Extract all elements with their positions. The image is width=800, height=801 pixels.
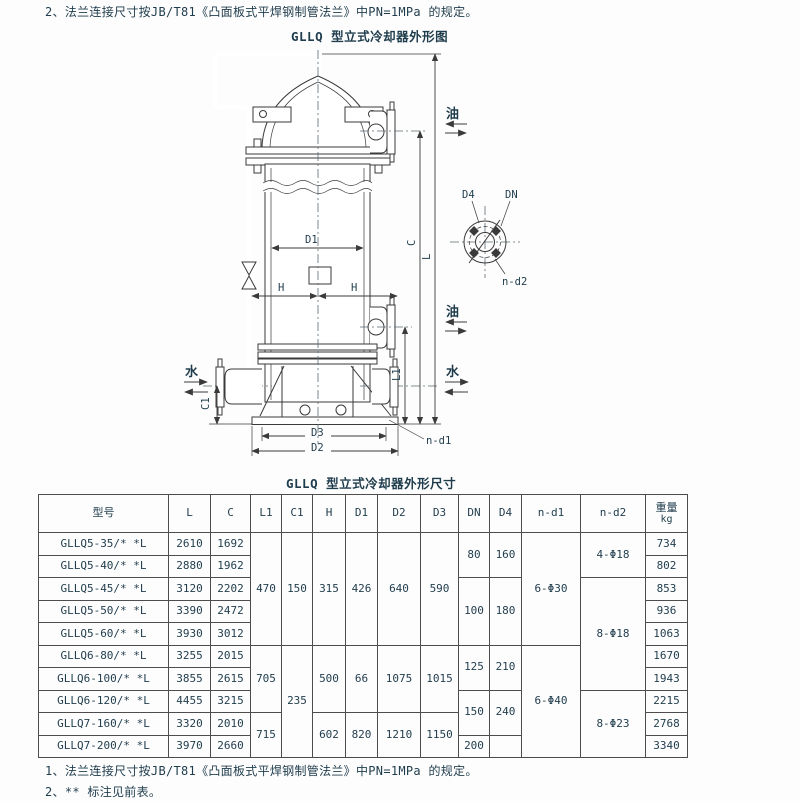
table-row: GLLQ5-35/* *L261016924701503154266405908… — [39, 533, 688, 556]
spec-table-body: GLLQ5-35/* *L261016924701503154266405908… — [39, 533, 688, 758]
water-label-left: 水 — [185, 364, 199, 380]
table-cell: GLLQ5-40/* *L — [39, 555, 169, 578]
table-cell: 200 — [459, 735, 490, 758]
table-title: GLLQ 型立式冷却器外形尺寸 — [286, 473, 456, 492]
spec-table-head: 型号LCL1C1HD1D2D3DND4n-d1n-d2重量kg — [39, 495, 688, 533]
oil-nozzle-top — [360, 102, 428, 162]
table-cell: 1962 — [211, 555, 251, 578]
table-cell: GLLQ5-35/* *L — [39, 533, 169, 556]
col-header-2: C — [211, 495, 251, 533]
table-cell: 3320 — [169, 713, 211, 736]
dim-d2-label: D2 — [311, 442, 324, 454]
table-cell: 2015 — [211, 645, 251, 668]
table-cell: 3855 — [169, 668, 211, 691]
table-cell: GLLQ5-60/* *L — [39, 623, 169, 646]
table-cell: 853 — [646, 578, 688, 601]
detail-nd2-label: n-d2 — [502, 276, 527, 288]
table-cell — [490, 735, 522, 758]
table-cell: 3120 — [169, 578, 211, 601]
table-cell: 2610 — [169, 533, 211, 556]
table-cell: GLLQ7-160/* *L — [39, 713, 169, 736]
table-cell: 6-Φ30 — [522, 533, 581, 646]
table-cell: 3215 — [211, 690, 251, 713]
detail-dn-label: DN — [505, 189, 518, 201]
table-cell: 1670 — [646, 645, 688, 668]
col-header-6: D1 — [346, 495, 378, 533]
col-header-12: n-d2 — [581, 495, 646, 533]
table-cell: 2660 — [211, 735, 251, 758]
table-cell: 602 — [313, 713, 346, 758]
table-cell: 1075 — [378, 645, 421, 713]
table-cell: 8-Φ23 — [581, 690, 646, 758]
table-cell: 66 — [346, 645, 378, 713]
table-cell: 3390 — [169, 600, 211, 623]
table-cell: 3930 — [169, 623, 211, 646]
table-cell: 426 — [346, 533, 378, 646]
table-cell: GLLQ5-50/* *L — [39, 600, 169, 623]
table-cell: 2472 — [211, 600, 251, 623]
table-cell: 80 — [459, 533, 490, 578]
table-cell: 3340 — [646, 735, 688, 758]
table-cell: 8-Φ18 — [581, 578, 646, 691]
col-header-11: n-d1 — [522, 495, 581, 533]
cooler-outline-drawing: 油 油 水 水 D1 H H C1 L1 C L D3 — [0, 42, 800, 467]
page: { "page": { "top_note": "2、法兰连接尺寸按JB/T81… — [0, 0, 800, 801]
col-header-0: 型号 — [39, 495, 169, 533]
table-cell: 734 — [646, 533, 688, 556]
table-cell: 2215 — [646, 690, 688, 713]
dim-h-right-label: H — [351, 282, 357, 294]
table-cell: 3012 — [211, 623, 251, 646]
table-cell: 235 — [282, 645, 313, 758]
table-cell: 4455 — [169, 690, 211, 713]
table-cell: 820 — [346, 713, 378, 758]
col-header-13: 重量kg — [646, 495, 688, 533]
spec-table: 型号LCL1C1HD1D2D3DND4n-d1n-d2重量kg GLLQ5-35… — [38, 494, 688, 758]
table-cell: 1943 — [646, 668, 688, 691]
table-cell: 1015 — [421, 645, 459, 713]
oil-label-mid: 油 — [446, 304, 459, 320]
table-cell: 1210 — [378, 713, 421, 758]
dim-c1-label: C1 — [200, 397, 212, 410]
table-cell: GLLQ6-80/* *L — [39, 645, 169, 668]
water-nozzle-right — [360, 359, 440, 415]
table-cell: 2768 — [646, 713, 688, 736]
col-header-3: L1 — [251, 495, 282, 533]
table-cell: 715 — [251, 713, 282, 758]
table-cell: 4-Φ18 — [581, 533, 646, 578]
table-cell: 2202 — [211, 578, 251, 601]
water-label-right: 水 — [446, 364, 460, 380]
table-cell: 1150 — [421, 713, 459, 758]
table-cell: GLLQ6-100/* *L — [39, 668, 169, 691]
table-cell: 705 — [251, 645, 282, 713]
dim-d1-label: D1 — [305, 234, 318, 246]
top-note: 2、法兰连接尺寸按JB/T81《凸面板式平焊钢制管法兰》中PN=1MPa 的规定… — [45, 3, 478, 20]
flange-detail: D4 DN n-d2 — [450, 189, 527, 288]
table-cell: 6-Φ40 — [522, 645, 581, 758]
valve-symbol — [242, 261, 256, 289]
col-header-8: D3 — [421, 495, 459, 533]
table-cell: 160 — [490, 533, 522, 578]
col-header-5: H — [313, 495, 346, 533]
dim-nd1-label: n-d1 — [426, 435, 451, 447]
col-header-4: C1 — [282, 495, 313, 533]
dim-l1-label: L1 — [391, 368, 403, 381]
footnote-2: 2、** 标注见前表。 — [45, 783, 161, 800]
table-cell: 150 — [282, 533, 313, 646]
dim-h-left-label: H — [278, 282, 284, 294]
table-cell: 100 — [459, 578, 490, 646]
footnote-1: 1、法兰连接尺寸按JB/T81《凸面板式平焊钢制管法兰》中PN=1MPa 的规定… — [45, 762, 478, 779]
table-cell: 210 — [490, 645, 522, 690]
table-cell: 1063 — [646, 623, 688, 646]
table-cell: 2615 — [211, 668, 251, 691]
table-cell: 2880 — [169, 555, 211, 578]
table-cell: 150 — [459, 690, 490, 735]
tube-sheet-flanges — [258, 344, 377, 364]
table-cell: 3970 — [169, 735, 211, 758]
col-header-10: D4 — [490, 495, 522, 533]
table-cell: 590 — [421, 533, 459, 646]
table-cell: 315 — [313, 533, 346, 646]
table-cell: GLLQ7-200/* *L — [39, 735, 169, 758]
table-cell: 2010 — [211, 713, 251, 736]
detail-d4-label: D4 — [462, 189, 475, 201]
water-nozzle-left — [203, 359, 272, 415]
table-cell: 180 — [490, 578, 522, 646]
col-header-7: D2 — [378, 495, 421, 533]
table-cell: 240 — [490, 690, 522, 735]
dim-d3-label: D3 — [311, 427, 324, 439]
table-cell: 640 — [378, 533, 421, 646]
dim-l-label: L — [421, 254, 433, 260]
table-cell: 1692 — [211, 533, 251, 556]
col-header-9: DN — [459, 495, 490, 533]
col-header-1: L — [169, 495, 211, 533]
table-cell: 936 — [646, 600, 688, 623]
table-cell: 470 — [251, 533, 282, 646]
table-cell: 125 — [459, 645, 490, 690]
table-cell: GLLQ6-120/* *L — [39, 690, 169, 713]
oil-label-top: 油 — [446, 106, 459, 122]
table-cell: 802 — [646, 555, 688, 578]
dim-c-label: C — [406, 240, 418, 246]
table-cell: 500 — [313, 645, 346, 713]
table-cell: GLLQ5-45/* *L — [39, 578, 169, 601]
table-cell: 3255 — [169, 645, 211, 668]
